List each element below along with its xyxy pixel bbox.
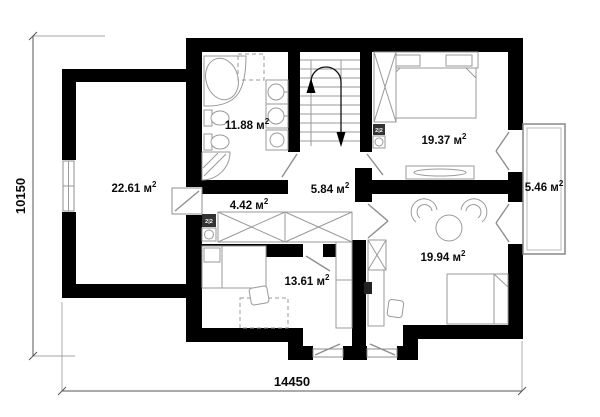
wardrobe-icon [374, 52, 396, 122]
svg-text:2|2: 2|2 [205, 219, 213, 225]
sink-icon [266, 104, 288, 128]
floor-plan-page: 2|2 [0, 0, 600, 417]
wardrobe-icon [368, 240, 386, 270]
cabinet-icon [336, 232, 352, 328]
door-room-left [172, 188, 202, 214]
dimension-width-label: 14450 [274, 374, 310, 389]
svg-text:2|2: 2|2 [375, 128, 383, 134]
room-area-label: 22.61 м2 [112, 180, 157, 195]
room-area-label: 13.61 м2 [285, 273, 330, 288]
washing-machine-icon [373, 136, 385, 148]
sink-icon [266, 80, 288, 104]
electric-panel-icon: 2|2 [373, 124, 385, 135]
room-area-label: 5.84 м2 [311, 181, 350, 196]
dimension-height-label: 10150 [13, 178, 28, 214]
electric-panel-icon: 2|2 [202, 214, 216, 227]
window-icon [63, 161, 74, 211]
single-bed-icon [447, 274, 508, 324]
toilet-icon [204, 134, 229, 150]
dresser-icon [406, 166, 474, 179]
room-area-label: 4.42 м2 [230, 197, 269, 212]
switch-icon [364, 282, 372, 294]
chair-icon [387, 299, 404, 318]
corridor-furniture: 2|2 [202, 212, 352, 242]
single-bed-icon [202, 246, 266, 288]
room-area-label: 5.46 м2 [525, 179, 564, 194]
cabinet-icon [368, 270, 384, 326]
wardrobe-icon [218, 212, 352, 242]
washing-machine-icon [266, 130, 288, 150]
floor-plan-canvas: 2|2 [0, 0, 600, 417]
washing-machine-icon [202, 228, 216, 241]
double-bed-icon [388, 52, 478, 118]
room-area-label: 19.37 м2 [422, 132, 467, 147]
room-area-label: 19.94 м2 [421, 249, 466, 264]
room-area-label: 11.88 м2 [225, 117, 270, 132]
chair-icon [249, 286, 270, 306]
